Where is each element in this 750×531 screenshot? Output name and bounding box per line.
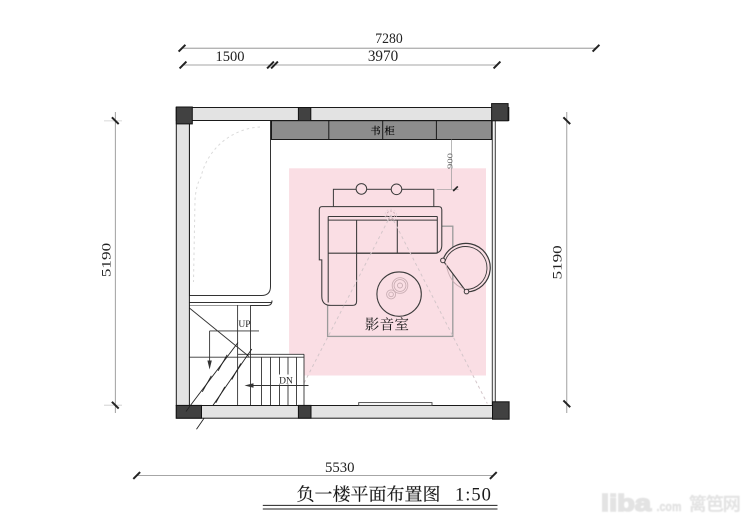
svg-text:1500: 1500 <box>216 49 245 65</box>
svg-text:UP: UP <box>238 320 250 330</box>
svg-text:7280: 7280 <box>375 31 402 47</box>
svg-text:5530: 5530 <box>325 460 355 476</box>
svg-text:5190: 5190 <box>100 243 114 277</box>
svg-text:900: 900 <box>445 153 454 169</box>
svg-text:.com: .com <box>657 499 682 514</box>
svg-text:1:50: 1:50 <box>455 486 492 506</box>
svg-text:3970: 3970 <box>368 48 399 65</box>
svg-text:liba: liba <box>601 490 652 516</box>
svg-text:5190: 5190 <box>551 245 565 279</box>
svg-text:DN: DN <box>279 377 293 387</box>
